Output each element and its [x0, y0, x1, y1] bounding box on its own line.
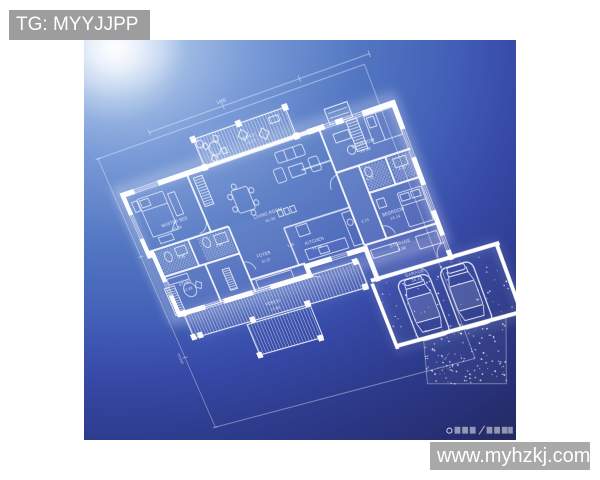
svg-text:1465: 1465: [216, 97, 228, 106]
